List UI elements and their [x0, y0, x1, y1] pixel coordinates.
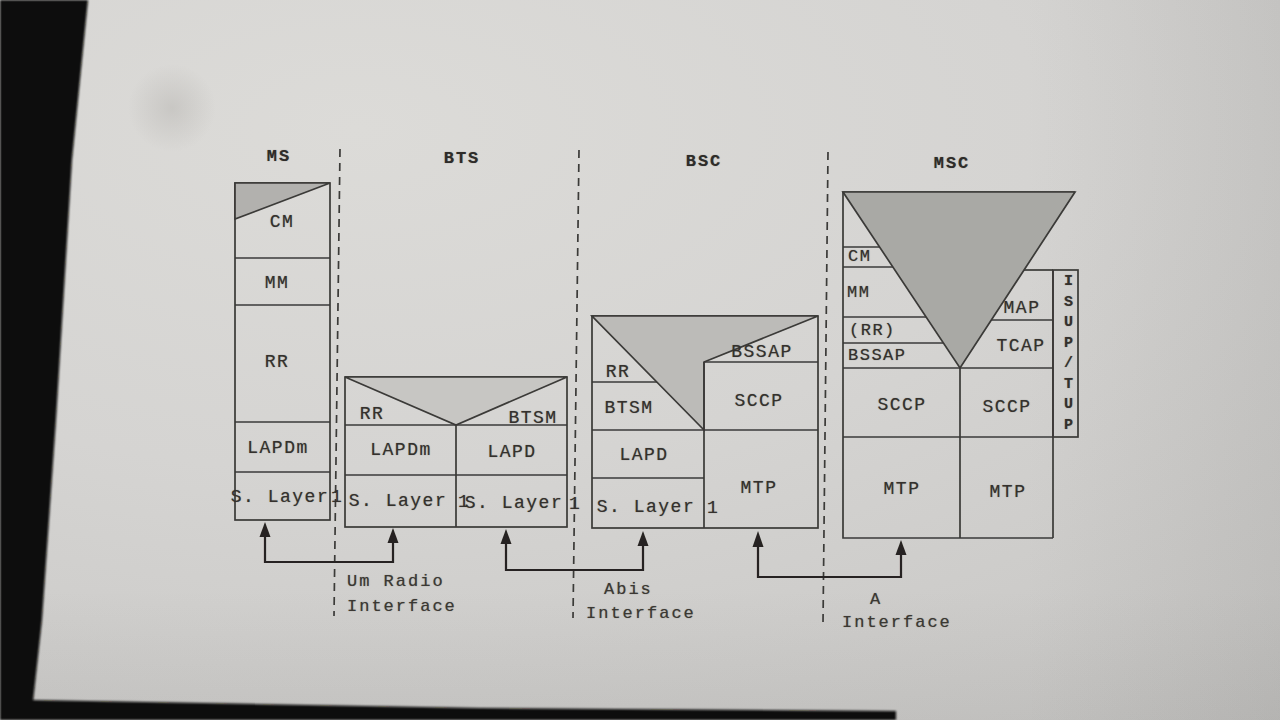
- bts-layer1-right-number: 1: [569, 493, 581, 515]
- msc-cm-label: CM: [848, 247, 871, 267]
- a-interface-line2: Interface: [842, 612, 952, 634]
- msc-bssap-label: BSSAP: [848, 346, 907, 366]
- a-arrowhead-right: [896, 540, 907, 555]
- bsc-lapd-label: LAPD: [619, 444, 668, 466]
- bsc-sccp-label: SCCP: [734, 390, 783, 412]
- photo-of-gsm-protocol-diagram: MS BTS BSC MSC CM MM RR LAPDm S. Layer 1…: [0, 0, 1280, 720]
- bsc-layer1-label: S. Layer: [597, 496, 695, 518]
- msc-tcap-label: TCAP: [996, 335, 1045, 357]
- ms-header: MS: [267, 146, 291, 168]
- dashed-separator-a: [823, 152, 828, 624]
- msc-mm-label: MM: [847, 283, 870, 303]
- a-arrowhead-left: [753, 531, 764, 547]
- bts-btsm-label: BTSM: [508, 407, 557, 429]
- um-bracket: [265, 534, 393, 562]
- abis-arrowhead-right: [638, 531, 649, 546]
- ms-lapdm-label: LAPDm: [247, 437, 309, 459]
- um-interface-line1: Um Radio: [347, 571, 445, 593]
- ms-rr-label: RR: [265, 351, 290, 373]
- msc-mtp-left-label: MTP: [884, 478, 921, 500]
- ms-layer1-number: 1: [331, 486, 343, 508]
- msc-rr-label: (RR): [849, 321, 896, 341]
- abis-interface-line1: Abis: [604, 579, 653, 601]
- ms-layer1-label: S. Layer: [231, 486, 329, 508]
- msc-sccp-left-label: SCCP: [877, 394, 926, 416]
- um-arrowhead-left: [260, 522, 271, 537]
- bts-lapdm-label: LAPDm: [370, 439, 432, 461]
- msc-sccp-right-label: SCCP: [982, 396, 1031, 418]
- dashed-separator-abis: [573, 150, 579, 618]
- a-bracket: [758, 545, 901, 577]
- bezel-bottom: [31, 700, 896, 720]
- ms-mm-label: MM: [265, 272, 290, 294]
- bsc-rr-label: RR: [606, 361, 631, 383]
- um-arrowhead-right: [388, 528, 399, 543]
- dashed-separator-um: [334, 149, 340, 616]
- um-interface-line2: Interface: [347, 596, 457, 618]
- bts-layer1-left-label: S. Layer: [349, 490, 447, 512]
- bsc-header: BSC: [686, 151, 723, 173]
- bsc-layer1-number: 1: [707, 497, 719, 519]
- bts-lapd-label: LAPD: [487, 441, 536, 463]
- a-interface-line1: A: [870, 589, 882, 611]
- msc-mtp-right-label: MTP: [990, 481, 1027, 503]
- bsc-btsm-label: BTSM: [604, 397, 653, 419]
- msc-isup-tup-label: ISUP/TUP: [1056, 273, 1080, 435]
- bts-layer1-right-label: S. Layer: [465, 492, 563, 514]
- msc-map-label: MAP: [1004, 297, 1041, 319]
- bsc-mtp-label: MTP: [741, 477, 778, 499]
- msc-header: MSC: [934, 153, 971, 175]
- bts-rr-label: RR: [360, 403, 385, 425]
- bts-header: BTS: [444, 148, 481, 170]
- ms-cm-label: CM: [270, 211, 295, 233]
- abis-arrowhead-left: [501, 529, 512, 544]
- abis-interface-line2: Interface: [586, 603, 696, 625]
- bsc-bssap-label: BSSAP: [731, 341, 793, 363]
- bezel-left: [0, 0, 88, 720]
